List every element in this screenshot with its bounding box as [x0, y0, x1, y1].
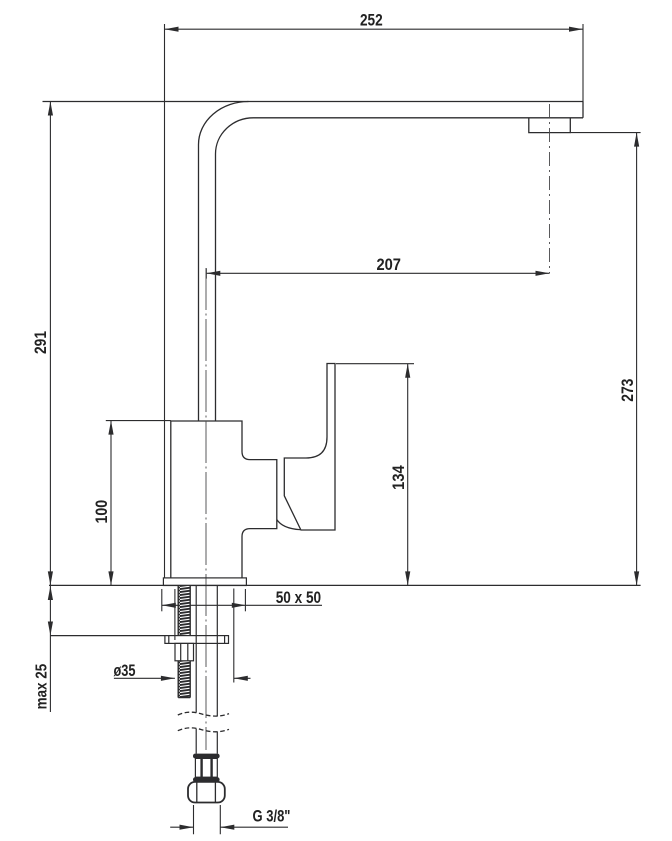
svg-text:G 3/8": G 3/8" [253, 807, 291, 826]
svg-text:100: 100 [92, 500, 111, 524]
svg-text:max 25: max 25 [33, 664, 50, 710]
svg-text:207: 207 [376, 255, 401, 274]
svg-text:291: 291 [31, 331, 50, 354]
svg-text:273: 273 [618, 379, 637, 402]
svg-text:252: 252 [360, 11, 383, 30]
svg-text:50 x 50: 50 x 50 [276, 588, 321, 607]
svg-text:134: 134 [389, 465, 408, 490]
svg-text:ø35: ø35 [114, 662, 136, 680]
